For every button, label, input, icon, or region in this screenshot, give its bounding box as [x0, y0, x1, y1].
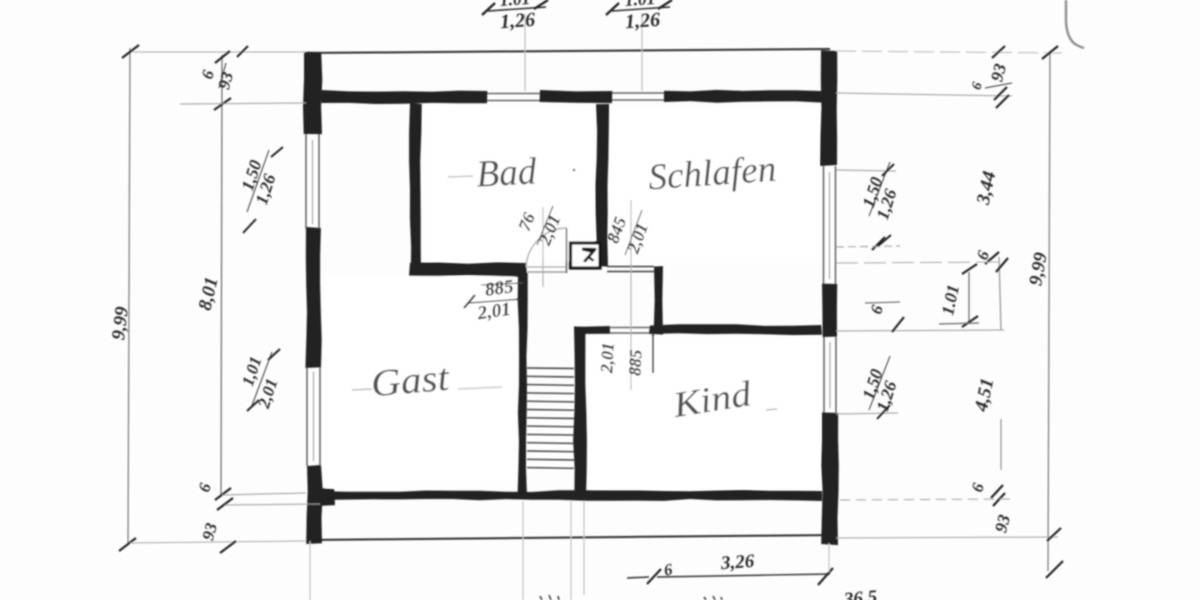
svg-text:885: 885	[624, 349, 645, 377]
svg-text:Gast: Gast	[369, 357, 452, 406]
svg-text:36,5: 36,5	[842, 587, 878, 600]
svg-text:1,26: 1,26	[624, 9, 660, 33]
svg-text:Bad: Bad	[475, 150, 538, 195]
svg-text:885: 885	[484, 276, 516, 301]
svg-text:1,26: 1,26	[499, 9, 535, 33]
svg-text:2,01: 2,01	[596, 342, 618, 375]
svg-text:3,26: 3,26	[719, 551, 755, 574]
svg-text:9,99: 9,99	[108, 305, 133, 341]
